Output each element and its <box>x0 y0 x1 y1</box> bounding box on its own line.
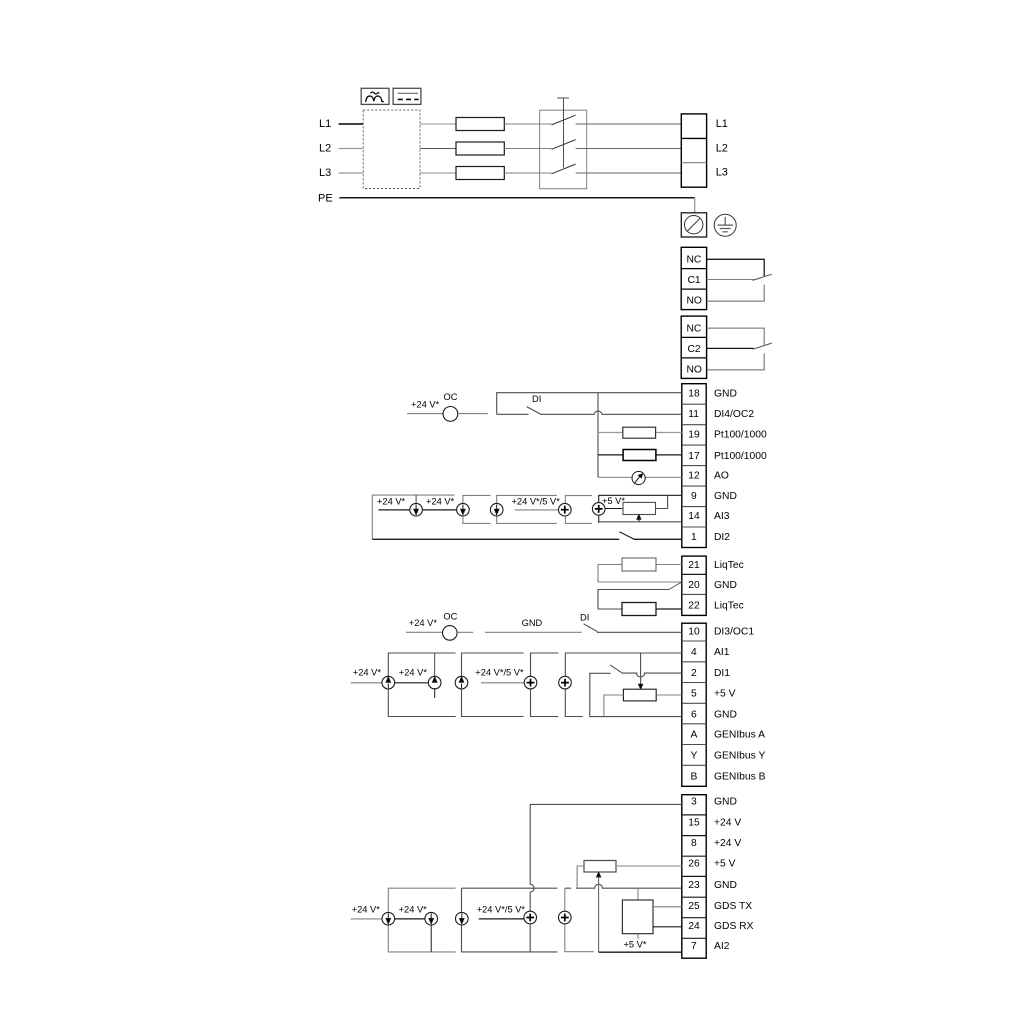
svg-text:2: 2 <box>691 668 697 679</box>
svg-text:8: 8 <box>691 838 697 849</box>
svg-text:+5 V: +5 V <box>714 689 736 700</box>
svg-text:GND: GND <box>714 797 737 808</box>
svg-text:C1: C1 <box>688 275 701 286</box>
svg-text:14: 14 <box>688 511 700 522</box>
svg-text:Pt100/1000: Pt100/1000 <box>714 429 767 440</box>
svg-text:+24 V: +24 V <box>714 817 741 828</box>
svg-text:+24 V*: +24 V* <box>352 905 381 915</box>
svg-text:+24 V*/5 V*: +24 V*/5 V* <box>477 905 526 915</box>
svg-text:GND: GND <box>714 388 737 399</box>
svg-text:AI1: AI1 <box>714 647 730 658</box>
svg-text:GENIbus Y: GENIbus Y <box>714 750 765 761</box>
svg-text:GND: GND <box>522 618 543 628</box>
svg-text:17: 17 <box>688 451 700 462</box>
svg-text:GND: GND <box>714 580 737 591</box>
svg-text:18: 18 <box>688 388 700 399</box>
svg-text:L3: L3 <box>716 167 728 179</box>
svg-text:+5 V: +5 V <box>714 859 736 870</box>
svg-text:GDS TX: GDS TX <box>714 901 752 912</box>
svg-text:20: 20 <box>688 580 700 591</box>
svg-text:LiqTec: LiqTec <box>714 601 744 612</box>
svg-text:1: 1 <box>691 532 697 543</box>
svg-text:7: 7 <box>691 941 697 952</box>
svg-text:GND: GND <box>714 880 737 891</box>
svg-text:+24 V*: +24 V* <box>377 497 406 507</box>
svg-text:C2: C2 <box>688 344 701 355</box>
svg-text:6: 6 <box>691 709 697 720</box>
svg-text:PE: PE <box>318 193 333 205</box>
svg-text:+24 V*: +24 V* <box>411 400 440 410</box>
svg-text:Y: Y <box>691 750 698 761</box>
svg-text:GENIbus B: GENIbus B <box>714 772 766 783</box>
svg-text:+5 V*: +5 V* <box>624 939 647 949</box>
svg-text:26: 26 <box>688 859 700 870</box>
svg-text:15: 15 <box>688 817 700 828</box>
svg-text:3: 3 <box>691 797 697 808</box>
svg-text:LiqTec: LiqTec <box>714 560 744 571</box>
svg-text:GND: GND <box>714 709 737 720</box>
svg-text:25: 25 <box>688 901 700 912</box>
svg-text:GND: GND <box>714 491 737 502</box>
svg-text:OC: OC <box>444 392 458 402</box>
svg-text:L3: L3 <box>319 167 331 179</box>
svg-text:21: 21 <box>688 560 700 571</box>
svg-text:NC: NC <box>687 255 702 266</box>
svg-text:23: 23 <box>688 880 700 891</box>
svg-text:GENIbus A: GENIbus A <box>714 730 765 741</box>
svg-text:A: A <box>691 730 698 741</box>
svg-text:DI3/OC1: DI3/OC1 <box>714 626 754 637</box>
svg-text:Pt100/1000: Pt100/1000 <box>714 451 767 462</box>
svg-text:OC: OC <box>443 612 457 622</box>
svg-text:4: 4 <box>691 647 697 658</box>
svg-text:+24 V*: +24 V* <box>399 905 428 915</box>
svg-text:L2: L2 <box>716 143 728 155</box>
svg-text:22: 22 <box>688 601 700 612</box>
svg-text:DI: DI <box>532 394 541 404</box>
svg-text:DI: DI <box>580 612 589 622</box>
svg-text:+5 V*: +5 V* <box>602 496 625 506</box>
svg-text:+24 V*: +24 V* <box>399 667 428 677</box>
svg-text:NC: NC <box>687 324 702 335</box>
svg-text:NO: NO <box>687 365 702 376</box>
svg-text:AI3: AI3 <box>714 511 730 522</box>
svg-text:AI2: AI2 <box>714 941 730 952</box>
svg-text:+24 V: +24 V <box>714 838 741 849</box>
svg-text:24: 24 <box>688 921 700 932</box>
svg-text:DI4/OC2: DI4/OC2 <box>714 409 754 420</box>
svg-text:GDS RX: GDS RX <box>714 921 754 932</box>
svg-text:10: 10 <box>688 626 700 637</box>
svg-text:AO: AO <box>714 470 729 481</box>
svg-text:L1: L1 <box>716 118 728 130</box>
svg-text:DI2: DI2 <box>714 532 730 543</box>
svg-text:L1: L1 <box>319 118 331 130</box>
svg-text:11: 11 <box>688 409 699 420</box>
svg-text:+24 V*/5 V*: +24 V*/5 V* <box>512 497 561 507</box>
svg-text:NO: NO <box>687 296 702 307</box>
svg-text:+24 V*: +24 V* <box>409 618 438 628</box>
svg-text:9: 9 <box>691 491 697 502</box>
svg-text:19: 19 <box>688 429 700 440</box>
svg-text:L2: L2 <box>319 143 331 155</box>
svg-text:+24 V*: +24 V* <box>353 667 382 677</box>
svg-text:+24 V*: +24 V* <box>426 497 455 507</box>
svg-text:+24 V*/5 V*: +24 V*/5 V* <box>475 667 524 677</box>
svg-text:DI1: DI1 <box>714 668 730 679</box>
svg-text:B: B <box>691 772 698 783</box>
svg-text:12: 12 <box>688 470 700 481</box>
svg-text:5: 5 <box>691 689 697 700</box>
